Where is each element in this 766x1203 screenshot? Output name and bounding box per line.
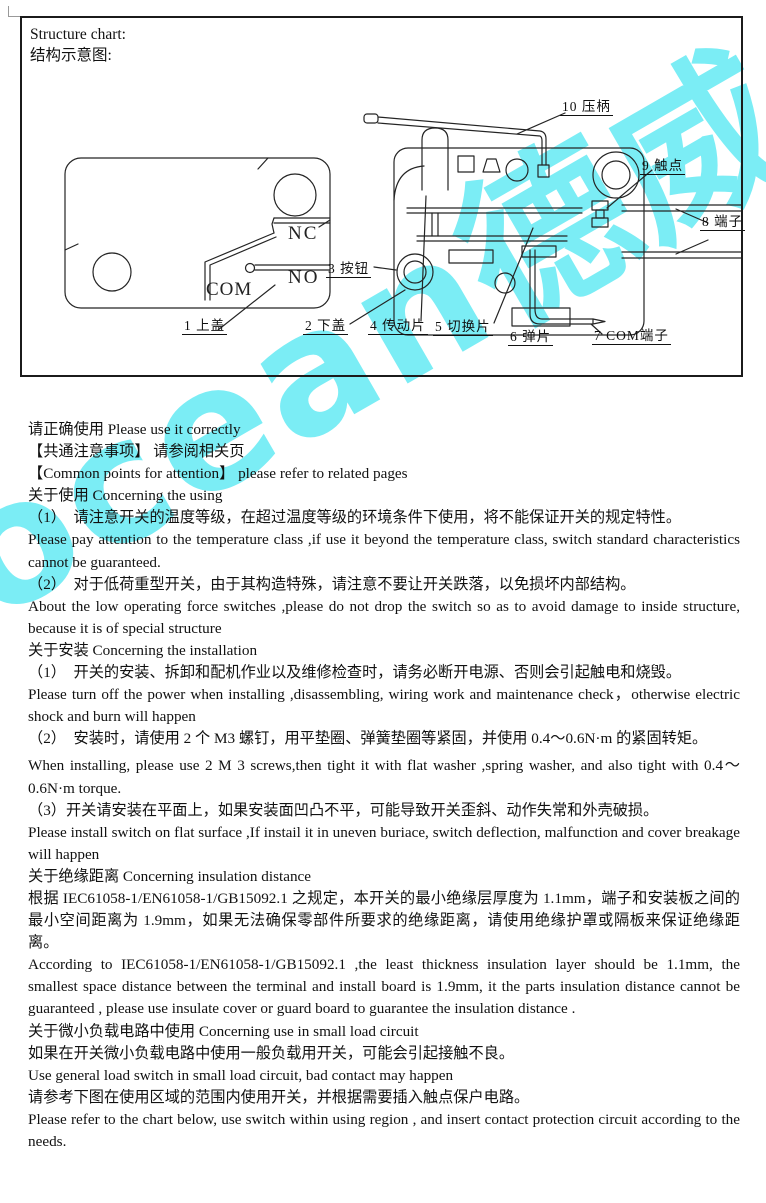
- marking-nc: NC: [288, 223, 318, 245]
- document-page: ocean德威 Structure chart: 结构示意图:: [0, 0, 766, 1203]
- body-paragraph: 如果在开关微小负载电路中使用一般负载用开关，可能会引起接触不良。: [28, 1043, 740, 1065]
- right-view-cross-section: [350, 113, 741, 335]
- structure-chart-title-en: Structure chart:: [30, 24, 126, 45]
- body-paragraph: 关于安装 Concerning the installation: [28, 640, 740, 662]
- structure-chart-box: Structure chart: 结构示意图:: [20, 16, 743, 377]
- body-paragraph: （2） 对于低荷重型开关，由于其构造特殊，请注意不要让开关跌落，以免损坏内部结构…: [28, 574, 740, 596]
- part-label-button: 3 按钮: [326, 261, 371, 278]
- part-label-contact: 9 触点: [640, 158, 685, 175]
- part-label-driving-piece: 4 传动片: [368, 318, 428, 335]
- body-paragraph: 关于使用 Concerning the using: [28, 485, 740, 507]
- body-paragraph: Please pay attention to the temperature …: [28, 529, 740, 573]
- part-label-com-terminal: 7 COM端子: [592, 328, 671, 345]
- body-paragraph: 请参考下图在使用区域的范围内使用开关，并根据需要插入触点保户电路。: [28, 1087, 740, 1109]
- body-paragraph: （3）开关请安装在平面上，如果安装面凹凸不平，可能导致开关歪斜、动作失常和外壳破…: [28, 800, 740, 822]
- body-paragraph: （1） 开关的安装、拆卸和配机作业以及维修检查时，请务必断开电源、否则会引起触电…: [28, 662, 740, 684]
- body-paragraph: 【Common points for attention】 please ref…: [28, 463, 740, 485]
- body-paragraph: About the low operating force switches ,…: [28, 596, 740, 640]
- body-paragraph: Use general load switch in small load ci…: [28, 1065, 740, 1087]
- body-paragraph: 请正确使用 Please use it correctly: [28, 419, 740, 441]
- structure-chart-title: Structure chart: 结构示意图:: [30, 24, 126, 66]
- body-paragraph: According to IEC61058-1/EN61058-1/GB1509…: [28, 954, 740, 1020]
- body-paragraph: 关于绝缘距离 Concerning insulation distance: [28, 866, 740, 888]
- part-label-press-handle: 10 压柄: [560, 99, 613, 116]
- part-label-upper-cover: 1 上盖: [182, 318, 227, 335]
- marking-no: NO: [288, 267, 319, 289]
- marking-com: COM: [206, 279, 252, 301]
- part-label-spring-piece: 6 弹片: [508, 329, 553, 346]
- part-label-lower-cover: 2 下盖: [303, 318, 348, 335]
- body-paragraph: 根据 IEC61058-1/EN61058-1/GB15092.1 之规定，本开…: [28, 888, 740, 954]
- part-label-terminal: 8 端子: [700, 214, 745, 231]
- body-paragraph: Please install switch on flat surface ,I…: [28, 822, 740, 866]
- body-paragraph: （1） 请注意开关的温度等级，在超过温度等级的环境条件下使用，将不能保证开关的规…: [28, 507, 740, 529]
- body-paragraph: Please refer to the chart below, use swi…: [28, 1109, 740, 1153]
- structure-chart-title-cn: 结构示意图:: [30, 45, 126, 66]
- body-paragraph: （2） 安装时，请使用 2 个 M3 螺钉，用平垫圈、弹簧垫圈等紧固，并使用 0…: [28, 728, 740, 750]
- part-label-switch-piece: 5 切换片: [433, 319, 493, 336]
- body-text: 请正确使用 Please use it correctly 【共通注意事项】 请…: [28, 419, 740, 1153]
- body-paragraph: 关于微小负载电路中使用 Concerning use in small load…: [28, 1021, 740, 1043]
- body-paragraph: Please turn off the power when installin…: [28, 684, 740, 728]
- body-paragraph: 【共通注意事项】 请参阅相关页: [28, 441, 740, 463]
- body-paragraph: When installing, please use 2 M 3 screws…: [28, 755, 740, 799]
